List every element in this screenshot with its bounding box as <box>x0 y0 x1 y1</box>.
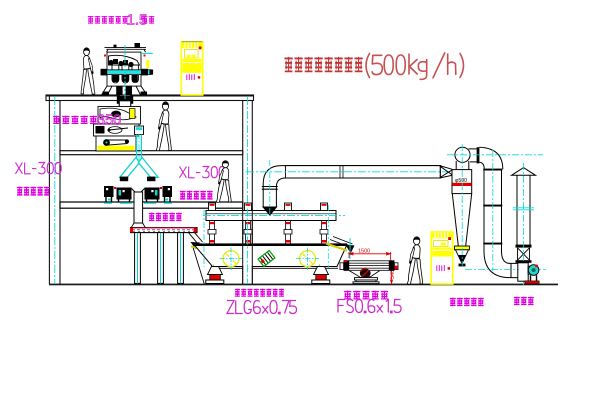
svg-text:φ500: φ500 <box>455 178 467 184</box>
svg-text:1500: 1500 <box>358 249 370 255</box>
svg-text:548: 548 <box>390 270 396 279</box>
svg-text:350: 350 <box>97 113 121 129</box>
